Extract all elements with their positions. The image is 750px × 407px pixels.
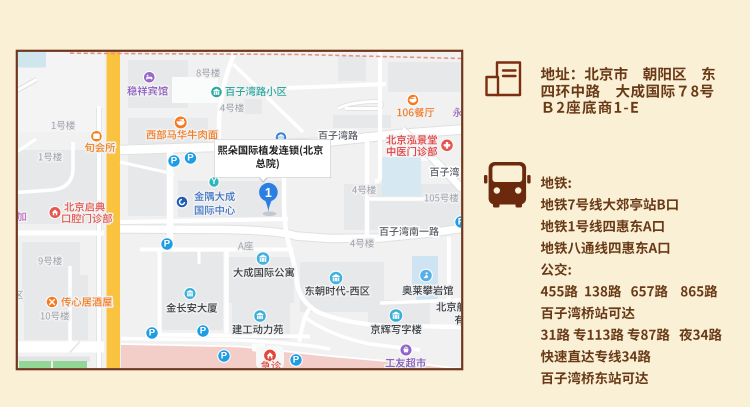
- svg-text:P: P: [149, 327, 156, 338]
- svg-text:1: 1: [265, 186, 272, 200]
- svg-text:P: P: [187, 152, 194, 163]
- svg-text:P: P: [164, 238, 171, 249]
- svg-text:P: P: [171, 155, 178, 166]
- svg-text:P: P: [200, 325, 207, 336]
- svg-text:P: P: [221, 350, 228, 361]
- svg-text:Y: Y: [211, 177, 217, 186]
- svg-text:P: P: [293, 354, 300, 365]
